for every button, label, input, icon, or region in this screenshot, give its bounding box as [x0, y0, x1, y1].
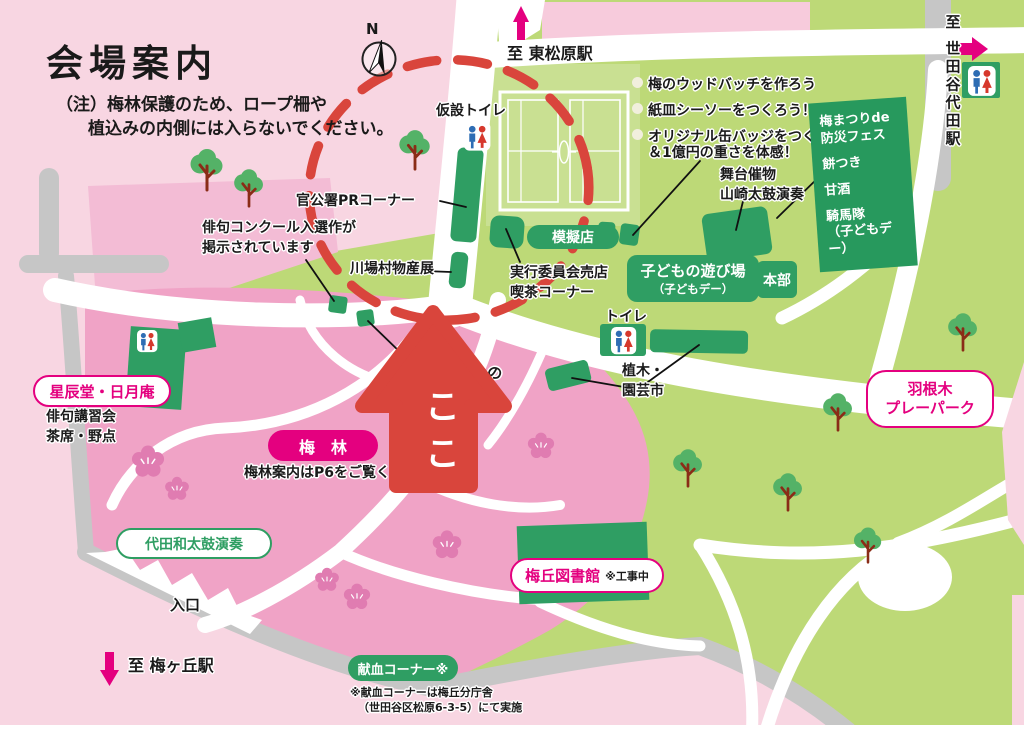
here-label: ここ — [414, 388, 465, 488]
venue-map: 会場案内 （注）梅林保護のため、ロープ柵や 植込みの内側には入らないでください。… — [0, 0, 1024, 730]
here-arrow-layer — [0, 0, 1024, 730]
